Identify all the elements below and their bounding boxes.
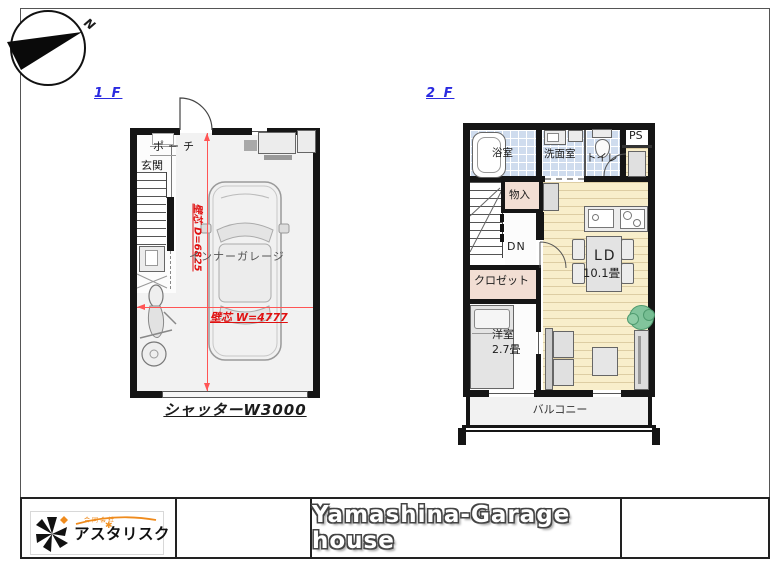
burner (633, 219, 641, 227)
door-dashes (545, 178, 584, 180)
company-name-label: アスタリスク (74, 526, 170, 544)
cabinet (543, 183, 559, 211)
wall (463, 123, 655, 130)
floor2-plan: 浴室 洗面室 トイレ PS 物入 DN クロゼット LD 10.1畳 洋室 2.… (0, 0, 778, 567)
ps-bottom-wall (622, 145, 652, 148)
project-title: Yamashina-Garage house (312, 497, 620, 559)
chair (572, 239, 585, 260)
vanity-counter (568, 130, 583, 142)
wall (463, 265, 541, 270)
plant-leaf (643, 309, 655, 321)
burner (623, 211, 632, 220)
sofa-back (545, 328, 553, 390)
wall (536, 212, 544, 240)
wall (463, 123, 470, 397)
western-room-size-label: 2.7畳 (492, 344, 521, 357)
balcony-rail (466, 397, 470, 428)
refrigerator (628, 151, 646, 177)
living-dining-label: LD (594, 248, 617, 264)
pipe-space-label: PS (629, 130, 643, 143)
balcony-rail (462, 430, 656, 432)
hall-door-arc (538, 240, 568, 270)
tv-board (634, 330, 649, 390)
door-line (538, 332, 539, 354)
wall (621, 390, 655, 397)
title-block-divider (175, 497, 177, 559)
faucet (592, 214, 599, 221)
sofa-cushion (553, 331, 574, 358)
chair (621, 239, 634, 260)
toilet-tank (592, 129, 612, 138)
stair-diagonals (470, 182, 502, 258)
washroom-label: 洗面室 (544, 148, 576, 160)
floor-plan-sheet: N 1 F 2 F (0, 0, 778, 567)
living-dining-size-label: 10.1畳 (583, 267, 620, 280)
title-block-divider (620, 497, 622, 559)
coffee-table (592, 347, 618, 376)
wall (648, 123, 655, 397)
stairs-down-label: DN (507, 241, 526, 254)
window-line (489, 393, 534, 394)
western-room-label: 洋室 (492, 329, 514, 342)
logo-star-icon (34, 514, 70, 552)
balcony-post (458, 428, 466, 445)
wall (534, 390, 593, 397)
sofa-cushion (553, 359, 574, 386)
tv-line (638, 336, 641, 384)
balcony-rail (462, 425, 656, 428)
window-line (593, 393, 621, 394)
chair (621, 263, 634, 284)
balcony-rail (648, 397, 652, 428)
vanity-bowl (547, 133, 559, 142)
toilet-label: トイレ (586, 152, 618, 164)
bathroom-label: 浴室 (492, 147, 513, 159)
wall (463, 299, 541, 304)
logo-asterisk-accent-icon: ✱ (105, 521, 113, 531)
balcony-label: バルコニー (515, 404, 605, 417)
pillow (474, 309, 510, 329)
plant-leaf (627, 313, 639, 325)
balcony-post (652, 428, 660, 445)
closet-label: クロゼット (474, 275, 529, 288)
stair-break-marks (500, 214, 504, 242)
wall (536, 126, 542, 176)
wall (463, 390, 489, 397)
storage-label: 物入 (509, 189, 530, 201)
